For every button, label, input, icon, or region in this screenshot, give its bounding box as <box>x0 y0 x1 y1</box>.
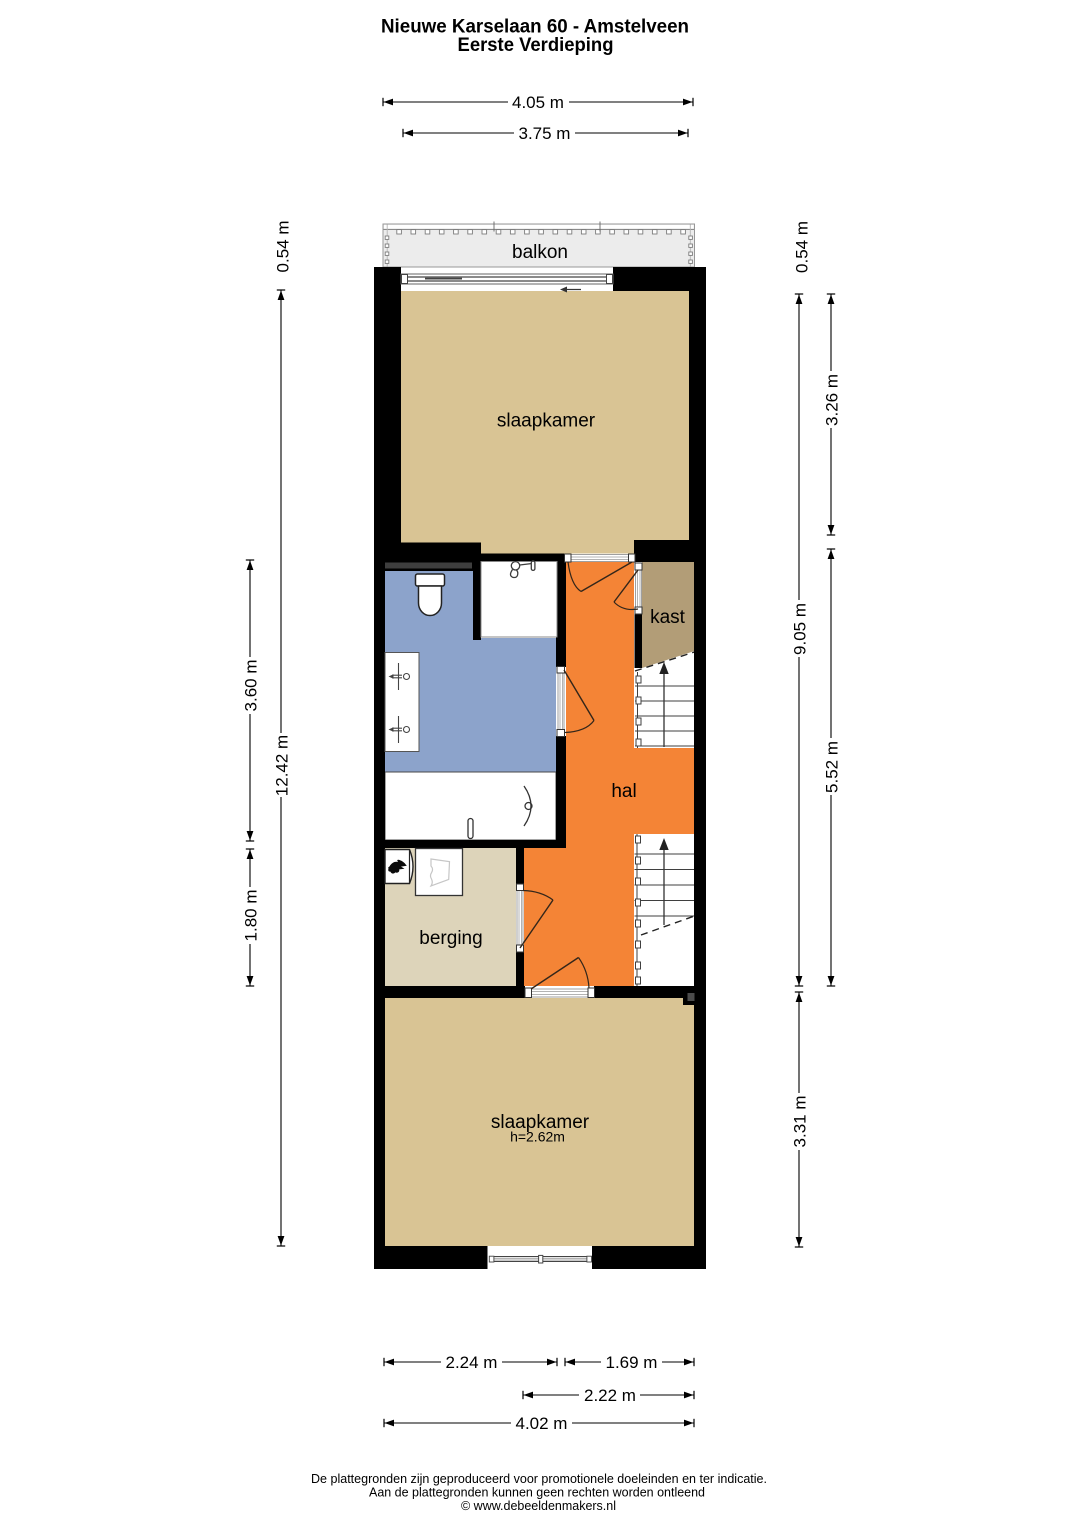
svg-text:© www.debeeldenmakers.nl: © www.debeeldenmakers.nl <box>461 1498 616 1513</box>
svg-text:3.31 m: 3.31 m <box>791 1096 810 1148</box>
svg-text:1.69 m: 1.69 m <box>606 1353 658 1372</box>
svg-text:12.42 m: 12.42 m <box>273 735 292 796</box>
svg-text:4.05 m: 4.05 m <box>512 93 564 112</box>
svg-text:kast: kast <box>650 607 686 628</box>
svg-text:berging: berging <box>419 928 482 949</box>
svg-text:0.54 m: 0.54 m <box>274 221 293 273</box>
svg-text:slaapkamer: slaapkamer <box>497 411 596 432</box>
svg-text:3.26 m: 3.26 m <box>823 374 842 426</box>
svg-text:3.75 m: 3.75 m <box>519 124 571 143</box>
svg-text:4.02 m: 4.02 m <box>516 1414 568 1433</box>
svg-text:Eerste Verdieping: Eerste Verdieping <box>458 34 614 56</box>
svg-text:0.54 m: 0.54 m <box>793 221 812 273</box>
svg-text:1.80 m: 1.80 m <box>242 890 261 942</box>
svg-text:5.52 m: 5.52 m <box>823 741 842 793</box>
svg-text:h=2.62m: h=2.62m <box>510 1129 565 1145</box>
svg-text:2.24 m: 2.24 m <box>446 1353 498 1372</box>
svg-text:hal: hal <box>611 781 636 802</box>
svg-text:balkon: balkon <box>512 242 568 263</box>
svg-text:2.22 m: 2.22 m <box>584 1386 636 1405</box>
svg-text:9.05 m: 9.05 m <box>791 603 810 655</box>
svg-text:3.60 m: 3.60 m <box>242 660 261 712</box>
